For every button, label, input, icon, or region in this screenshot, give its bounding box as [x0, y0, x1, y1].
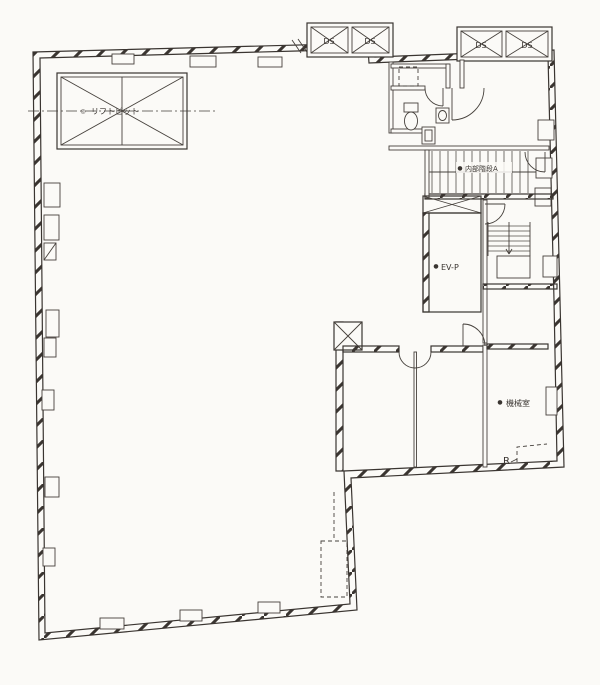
elevator-label: EV-P: [441, 263, 459, 272]
elevator-side-wall: [423, 213, 429, 312]
wall-pilaster: [44, 215, 59, 240]
stair-hall-wall: [483, 200, 487, 343]
vestibule-wall: [460, 60, 464, 88]
wall-pilaster: [180, 610, 202, 621]
floor-plan-svg: ◎ リフトピット DS DS DS DS: [0, 0, 600, 685]
machine-room-wall: [483, 345, 487, 467]
wall-pilaster: [258, 57, 282, 67]
toilet-bowl: [405, 112, 418, 130]
lift-pit-label: リフトピット: [91, 107, 139, 116]
wall-pilaster: [258, 602, 280, 613]
room-block: ● 機械室 R: [334, 322, 548, 471]
dashed-box: [321, 541, 347, 597]
main-staircase: [483, 200, 557, 343]
exterior-dashed-feature: [321, 492, 347, 597]
shaft-dashed-box: [399, 67, 418, 86]
wall-pilaster: [100, 618, 124, 629]
toilet-area: [389, 60, 484, 144]
stair-wall: [483, 284, 557, 289]
machine-room-bullet: ●: [497, 399, 502, 406]
wall-pilaster: [190, 56, 216, 67]
duct-shaft-frame: [307, 23, 393, 57]
door-swing: [452, 88, 484, 120]
service-box: [543, 256, 557, 277]
wall-pilaster: [46, 310, 59, 337]
floor-plan-page: ◎ リフトピット DS DS DS DS: [0, 0, 600, 685]
wall-pilaster: [112, 54, 134, 64]
wall-pilaster: [44, 183, 60, 207]
wall-pilaster: [43, 548, 55, 566]
wall-pilaster: [546, 387, 557, 415]
stair-a-label: 内部階段A: [465, 164, 498, 173]
wall-pilaster: [45, 477, 59, 497]
staircase-a: ● 内部階段A: [389, 146, 553, 199]
lift-pit-bullet: ◎: [80, 108, 85, 115]
stair-landing: [497, 256, 530, 278]
door-swing: [463, 324, 485, 346]
wall-pilaster: [538, 120, 554, 140]
double-door-swing: [399, 352, 431, 368]
roof-drain-mark: R: [503, 456, 510, 467]
wall-pilasters: [42, 54, 557, 629]
wall-pilaster: [44, 338, 56, 357]
duct-shaft-cluster-2: DS DS: [457, 27, 552, 61]
stair-wall: [425, 150, 429, 198]
stair-wall: [389, 146, 549, 150]
wall-pilaster: [536, 158, 552, 178]
stair-a-bullet: ●: [457, 165, 462, 172]
elevator-bullet: ●: [433, 263, 438, 270]
duct-shaft-cluster-1: DS DS: [307, 23, 393, 57]
door-swing: [425, 88, 443, 106]
toilet-wall: [391, 86, 425, 90]
roof-drain-tick: [511, 459, 517, 462]
machine-room-top-wall: [487, 344, 548, 349]
duct-shaft-label: DS: [323, 37, 334, 46]
duct-shaft-label: DS: [364, 37, 375, 46]
toilet-wall: [446, 64, 450, 88]
duct-shaft-label: DS: [521, 41, 532, 50]
toilet-wall: [389, 62, 393, 133]
machine-room-label: 機械室: [506, 398, 530, 408]
duct-shaft-label: DS: [475, 41, 486, 50]
room-top-wall: [343, 346, 399, 352]
door-swing: [485, 204, 505, 224]
wall-pilaster: [42, 390, 54, 410]
room-top-wall: [431, 346, 483, 352]
duct-shaft-frame: [457, 27, 552, 61]
elevator-shaft: ● EV-P: [423, 196, 481, 312]
lift-pit: ◎ リフトピット: [28, 73, 218, 149]
toilet-tank: [404, 103, 418, 112]
room-divider-wall: [414, 352, 417, 467]
roof-drain-dashed-line: [517, 444, 547, 462]
